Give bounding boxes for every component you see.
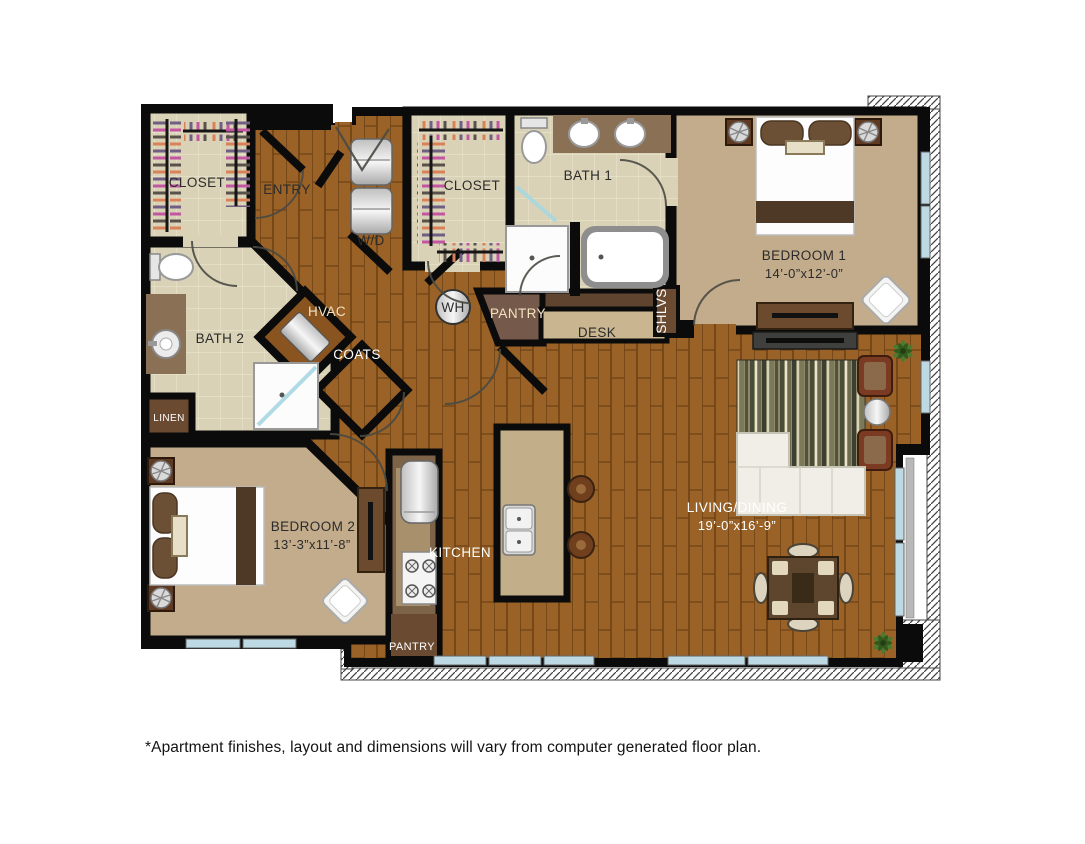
nightstand-fan [148,458,174,484]
window [921,361,930,413]
label-linen: LINEN [153,413,184,424]
dimensions-bedroom-2: 13’-3”x11’-8” [273,537,350,552]
label-closet-b: CLOSET [444,178,500,193]
nightstand-fan [726,119,752,145]
nightstand-fan [855,119,881,145]
window [243,639,296,648]
label-bath-1: BATH 1 [564,168,613,183]
side-table [864,399,890,425]
window [921,206,930,258]
label-hvac: HVAC [308,304,346,319]
window [434,656,486,665]
shower [506,226,568,292]
label-pantry-upper: PANTRY [490,306,546,321]
window [921,152,930,204]
label-kitchen: KITCHEN [429,545,491,560]
disclaimer-text: *Apartment finishes, layout and dimensio… [145,739,761,757]
label-bath-2: BATH 2 [196,331,245,346]
window [544,656,594,665]
label-pantry-lower: PANTRY [389,641,435,653]
label-bedroom-2: BEDROOM 2 [271,519,356,534]
window [895,468,904,540]
tv [772,313,838,318]
dining-chair [754,573,768,603]
label-entry: ENTRY [263,182,311,197]
label-bedroom-1: BEDROOM 1 [762,248,847,263]
label-desk: DESK [578,325,616,340]
window [748,656,828,665]
window [186,639,240,648]
label-coats: COATS [333,347,381,362]
dimensions-living-dining: 19’-0”x16’-9” [698,518,776,533]
toilet [159,254,193,280]
label-water-heater: WH [441,300,464,315]
corner-wall-block [897,624,923,662]
floor-plan-svg: CLOSET ENTRY W/D CLOSET BATH 1 BEDROOM 1… [0,0,1085,844]
refrigerator [401,461,438,523]
toilet [522,131,546,163]
label-living-dining: LIVING/DINING [687,500,787,515]
entry-top-wall [251,104,331,130]
window [895,543,904,616]
tv [766,338,844,343]
dimensions-bedroom-1: 14’-0”x12’-0” [765,266,843,281]
label-shelves: SHLVS [654,288,669,333]
nightstand-fan [148,585,174,611]
window [489,656,541,665]
label-closet-a: CLOSET [169,175,225,190]
bed-runner [756,201,854,223]
floor-plan-page: CLOSET ENTRY W/D CLOSET BATH 1 BEDROOM 1… [0,0,1085,844]
toilet-tank [521,118,547,128]
label-laundry: W/D [357,233,384,248]
window [668,656,745,665]
dining-chair [788,544,818,558]
bed-runner [236,487,256,585]
dining-chair [839,573,853,603]
tv [368,502,373,560]
